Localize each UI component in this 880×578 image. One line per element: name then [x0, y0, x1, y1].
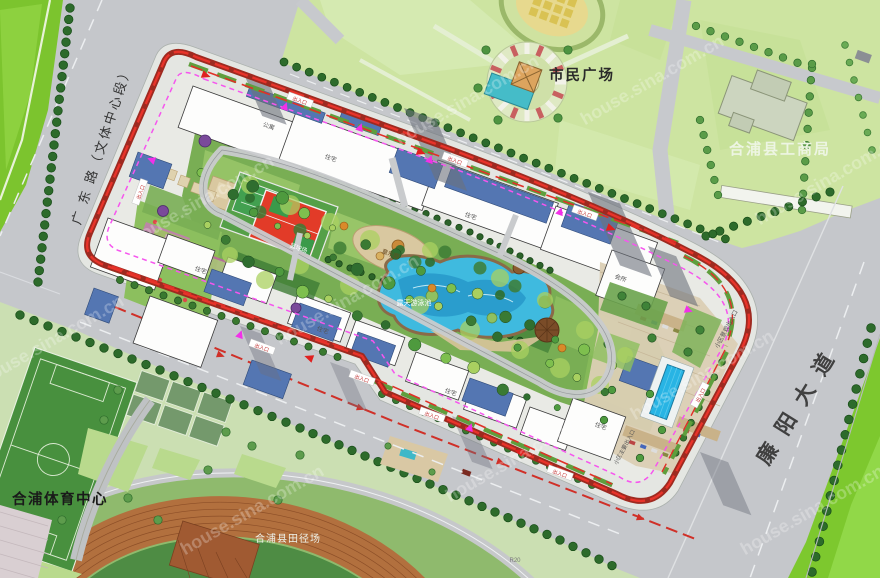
svg-text:合浦体育中心: 合浦体育中心 [11, 490, 108, 508]
svg-text:市民广场: 市民广场 [549, 66, 615, 84]
svg-text:合浦县工商局: 合浦县工商局 [728, 140, 831, 158]
svg-text:露天游泳池: 露天游泳池 [397, 298, 432, 307]
svg-text:合浦县田径场: 合浦县田径场 [255, 532, 321, 545]
svg-text:R20: R20 [509, 558, 521, 564]
